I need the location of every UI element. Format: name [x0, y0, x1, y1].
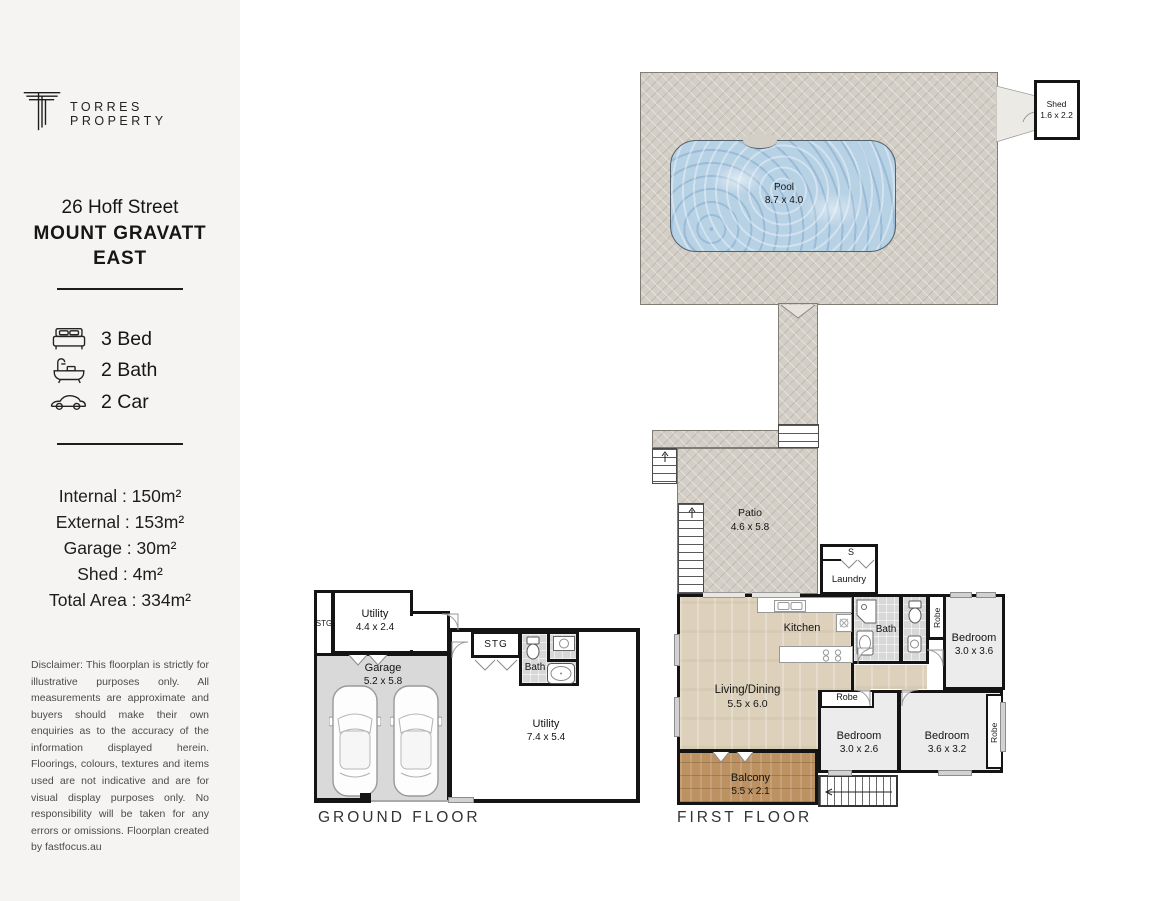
wall-segment [547, 634, 550, 661]
robe-bed3-label: Robe [989, 714, 999, 752]
window [950, 592, 972, 598]
stairs-to-first-floor [678, 503, 704, 594]
double-door-icon [348, 654, 388, 667]
area-summary: Internal : 150m² External : 153m² Garage… [0, 483, 240, 613]
stg-left: STG [314, 590, 334, 658]
garage-wall [314, 798, 366, 803]
wall-segment [547, 659, 576, 662]
wc-basin-icon [907, 635, 922, 653]
door-arc-icon [925, 648, 945, 668]
window [674, 697, 680, 737]
stg-mid-label: STG [474, 638, 518, 651]
tub-icon [547, 663, 575, 684]
stove-icon [818, 648, 848, 662]
bath-basin-icon [553, 636, 575, 651]
window [448, 797, 474, 803]
bedroom-2-label: Bedroom 3.0 x 2.6 [821, 729, 897, 756]
sidebar: TORRES PROPERTY 26 Hoff Street MOUNT GRA… [0, 0, 240, 901]
area-external: External : 153m² [0, 509, 240, 535]
first-floor-title: FIRST FLOOR [677, 809, 812, 827]
garage-door-post [360, 793, 371, 803]
area-shed: Shed : 4m² [0, 561, 240, 587]
bifold-door-icon [840, 559, 876, 570]
feature-bed: 3 Bed [48, 324, 198, 354]
utility-upper [332, 590, 413, 654]
area-internal: Internal : 150m² [0, 483, 240, 509]
bedroom-3-label: Bedroom 3.6 x 3.2 [903, 729, 991, 756]
toilet-icon [907, 600, 923, 624]
path-to-pool [778, 303, 818, 433]
robe-bed1-label: Robe [932, 600, 942, 636]
bath-ground-label: Bath [520, 661, 550, 674]
sliding-door-v-icon [736, 751, 754, 763]
laundry-storage-label: S [841, 547, 861, 559]
stairs-up-arrow-icon [688, 507, 696, 519]
sliding-door [703, 592, 745, 598]
bath-icon [48, 355, 88, 385]
door-arc-icon [852, 688, 872, 708]
area-total: Total Area : 334m² [0, 587, 240, 613]
shower-icon [856, 599, 878, 625]
garage-door-opening [371, 800, 450, 802]
ground-floor-title: GROUND FLOOR [318, 809, 481, 827]
shed-label: Shed 1.6 x 2.2 [1037, 99, 1076, 121]
torres-logo-icon [22, 90, 62, 137]
pool-label: Pool 8.7 x 4.0 [671, 181, 897, 207]
utility-main-label: Utility 7.4 x 5.4 [496, 717, 596, 744]
bedroom-1: Bedroom 3.0 x 3.6 [943, 594, 1005, 690]
bed-icon [48, 325, 88, 353]
feature-car-label: 2 Car [101, 391, 149, 414]
window [674, 634, 680, 666]
stg-mid: STG [471, 631, 521, 658]
stairs-first-floor [818, 775, 898, 807]
brand-logo: TORRES PROPERTY [22, 90, 222, 137]
area-garage: Garage : 30m² [0, 535, 240, 561]
window [976, 592, 996, 598]
pool-notch [743, 133, 777, 149]
sliding-door-v-icon [712, 751, 730, 763]
car-top-view [329, 683, 381, 799]
door-arc-icon [856, 646, 876, 666]
window [1000, 702, 1006, 752]
bifold-door-icon [474, 659, 518, 672]
feature-bed-label: 3 Bed [101, 328, 152, 351]
stg-left-label: STG [315, 619, 333, 629]
sliding-door [752, 592, 800, 598]
wall-segment [823, 559, 841, 561]
fan-icon [837, 615, 851, 631]
paved-landing [652, 430, 779, 448]
stairs-up-arrow-icon [661, 451, 669, 463]
shed-pathway [996, 82, 1038, 144]
door-arc-icon [900, 688, 920, 708]
divider [57, 443, 183, 445]
shed: Shed 1.6 x 2.2 [1034, 80, 1080, 140]
address-street: 26 Hoff Street [0, 197, 240, 219]
wall-join-patch [410, 616, 416, 650]
balcony-label: Balcony 5.5 x 2.1 [693, 771, 808, 798]
toilet-icon [525, 636, 541, 660]
car-icon [48, 390, 88, 414]
stairs-left-arrow-icon [822, 788, 894, 796]
garage: Garage 5.2 x 5.8 [314, 653, 450, 801]
divider [57, 288, 183, 290]
hallway [854, 665, 927, 689]
stairs-upper-garden [652, 448, 677, 484]
pool: Pool 8.7 x 4.0 [670, 140, 896, 252]
disclaimer-text: Disclaimer: This floorplan is strictly f… [31, 657, 209, 856]
feature-car: 2 Car [48, 387, 198, 417]
steps-path [778, 424, 819, 448]
feature-bath-label: 2 Bath [101, 359, 157, 382]
window [938, 770, 972, 776]
bath-ground: Bath [519, 631, 579, 686]
gate-marker-icon [780, 304, 816, 320]
door-arc-icon [440, 612, 460, 632]
car-top-view [390, 683, 442, 799]
bedroom-1-label: Bedroom 3.0 x 3.6 [946, 631, 1002, 658]
window [828, 770, 852, 776]
floorplan-page: TORRES PROPERTY 26 Hoff Street MOUNT GRA… [0, 0, 1151, 901]
kitchen-appliance [836, 614, 852, 632]
address-suburb: MOUNT GRAVATT EAST [0, 221, 240, 271]
door-arc-icon [450, 640, 470, 660]
laundry: S Laundry [820, 544, 878, 595]
kitchen-sink-icon [774, 600, 806, 612]
feature-bath: 2 Bath [48, 355, 198, 385]
kitchen-island [779, 646, 853, 663]
patio-label: Patio 4.6 x 5.8 [692, 507, 808, 534]
laundry-label: Laundry [823, 574, 875, 586]
brand-name: TORRES PROPERTY [70, 100, 222, 128]
kitchen-counter [757, 597, 852, 613]
